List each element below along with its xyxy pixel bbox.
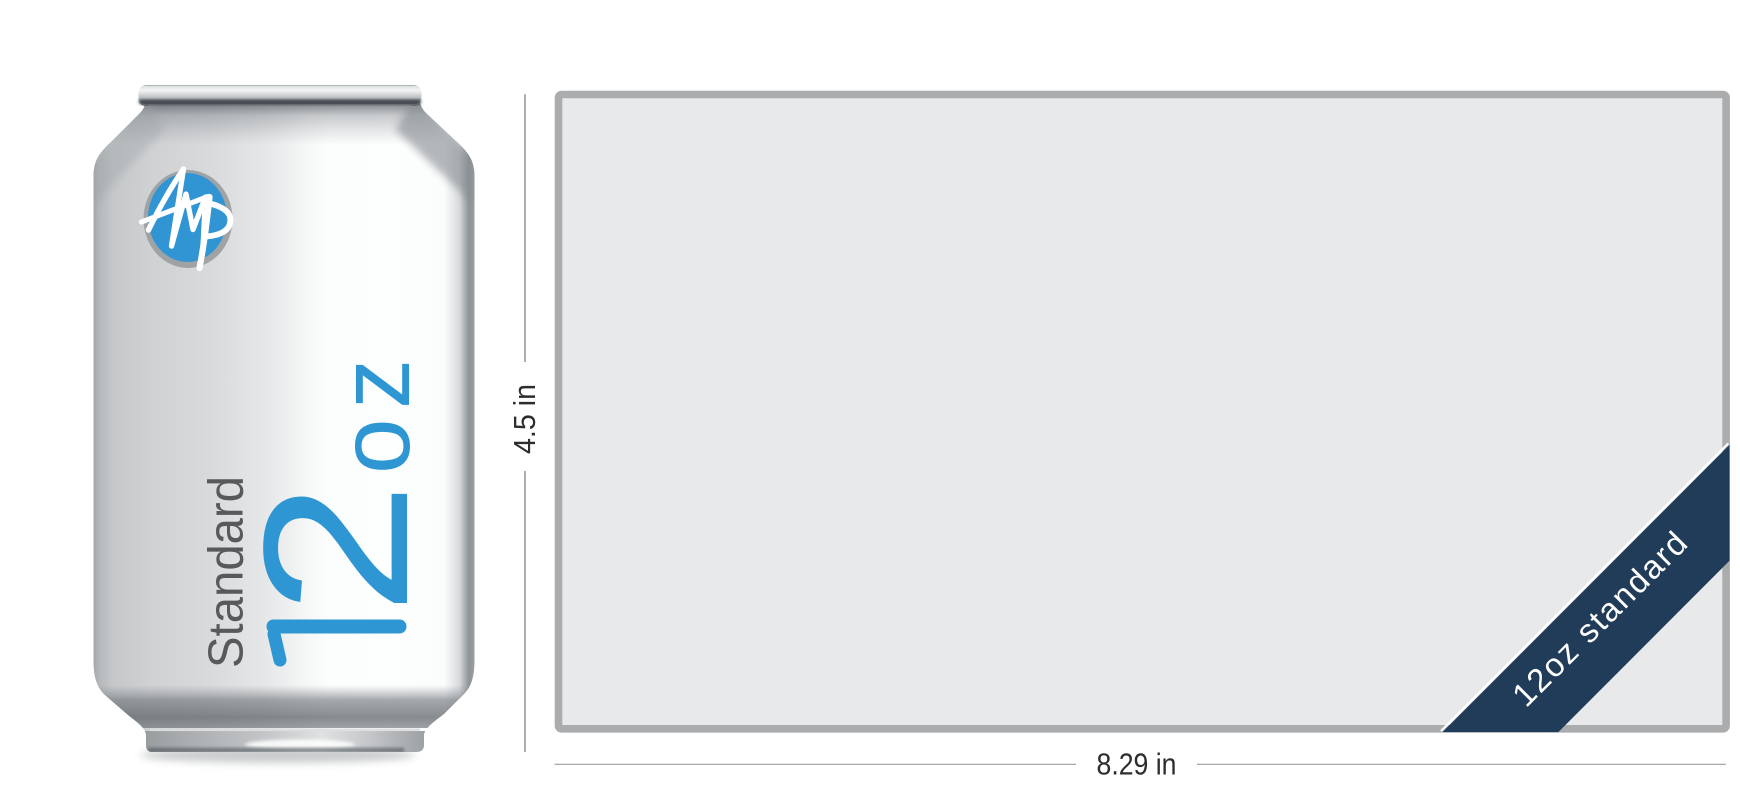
svg-text:4.5 in: 4.5 in [507,384,542,454]
svg-text:oz: oz [319,349,431,474]
svg-text:2: 2 [222,482,452,615]
svg-text:8.29 in: 8.29 in [1097,747,1177,782]
